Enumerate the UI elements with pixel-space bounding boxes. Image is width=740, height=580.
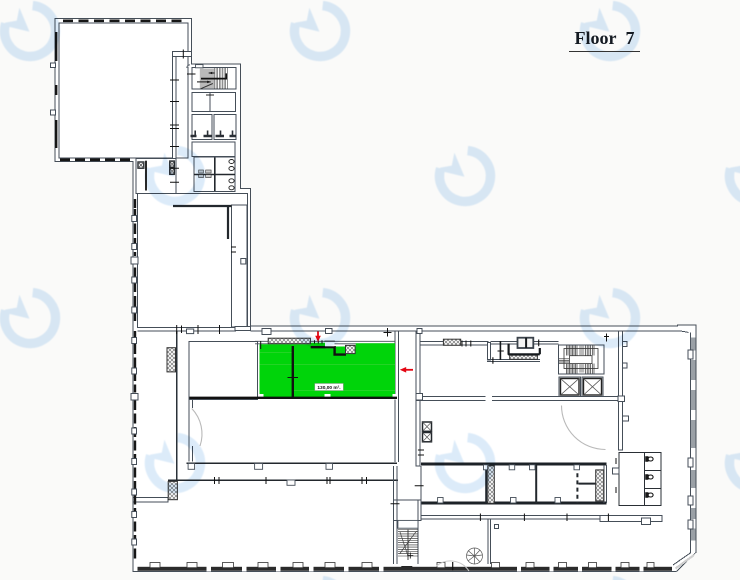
svg-text:130,00 m².: 130,00 m². <box>317 385 340 391</box>
